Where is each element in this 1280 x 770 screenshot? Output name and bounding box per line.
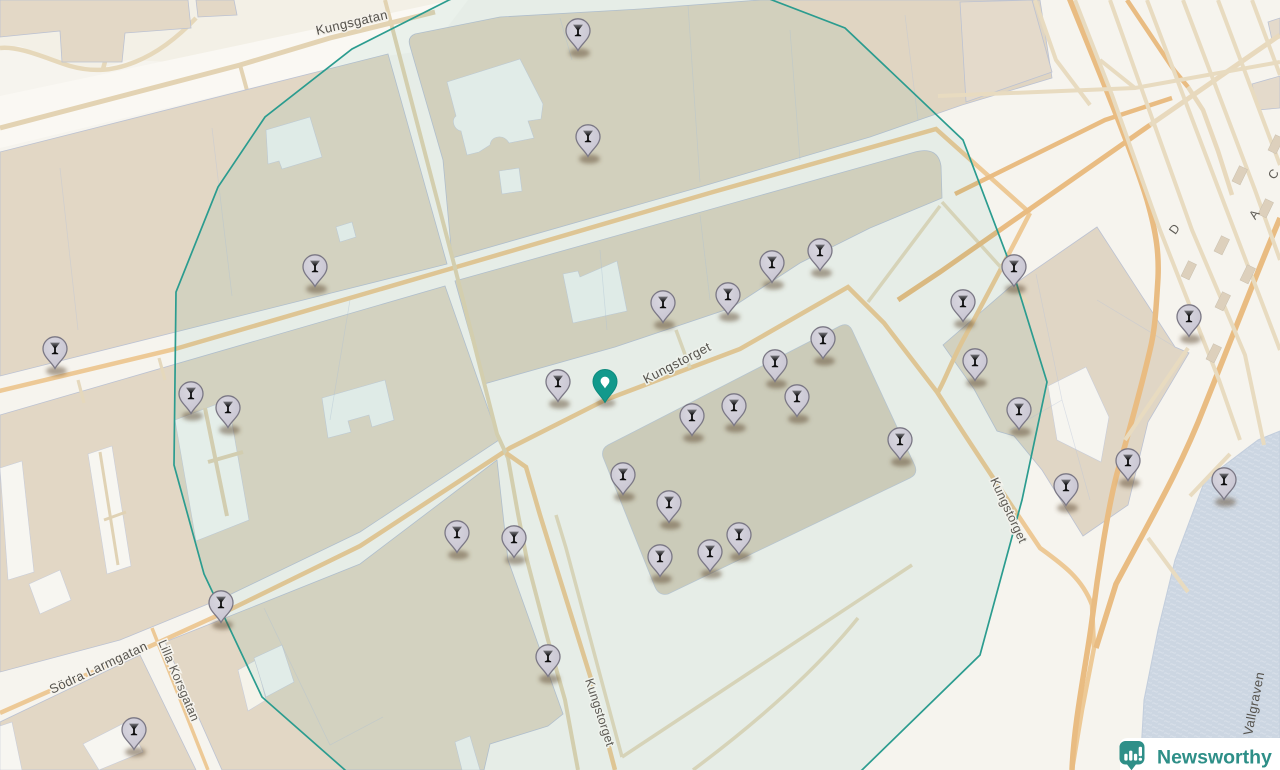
svg-text:Newsworthy: Newsworthy — [1157, 747, 1272, 769]
